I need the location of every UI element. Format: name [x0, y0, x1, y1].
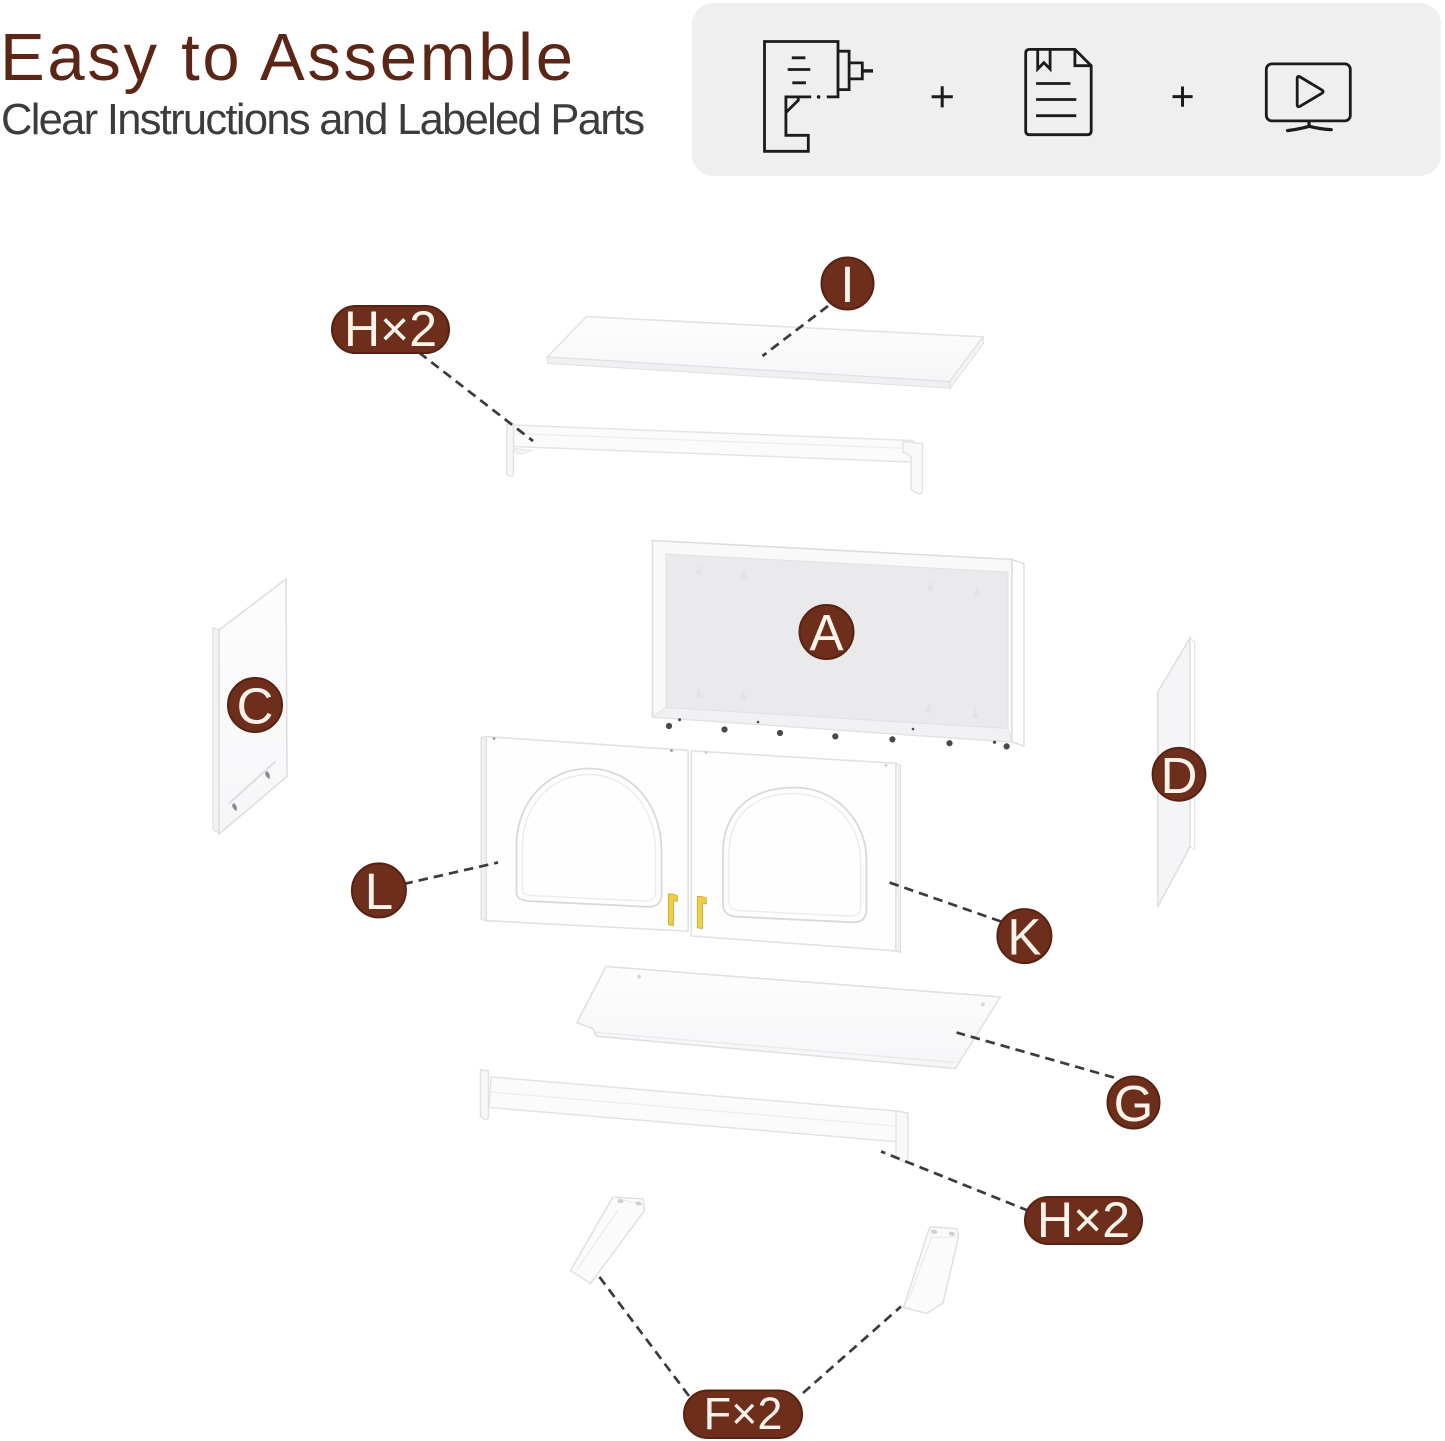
svg-text:A: A	[809, 605, 843, 662]
svg-text:C: C	[237, 678, 274, 735]
svg-text:H×2: H×2	[1037, 1192, 1130, 1248]
svg-text:K: K	[1007, 909, 1041, 966]
svg-text:H×2: H×2	[344, 301, 437, 357]
svg-text:G: G	[1114, 1075, 1154, 1132]
svg-text:L: L	[365, 863, 393, 920]
svg-text:I: I	[840, 256, 854, 313]
svg-text:D: D	[1161, 747, 1198, 804]
svg-text:F×2: F×2	[704, 1388, 783, 1439]
